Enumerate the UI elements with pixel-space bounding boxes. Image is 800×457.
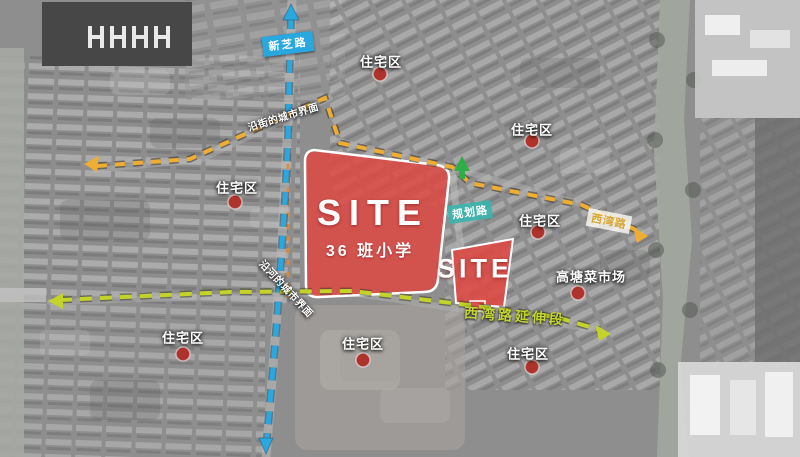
residential-label-5: 住宅区 xyxy=(342,334,384,353)
secondary-site-title: SITE xyxy=(437,254,513,285)
main-site-title: SITE xyxy=(317,192,429,234)
poi-dot-residential xyxy=(356,353,370,367)
residential-label-2: 住宅区 xyxy=(511,120,553,139)
poi-dot-residential xyxy=(176,347,190,361)
residential-label-1: 住宅区 xyxy=(360,52,402,71)
site-analysis-map: 新芝路 住宅区 住宅区 住宅区 住宅区 住宅区 住宅区 住宅区 高塘菜市场 规划… xyxy=(0,0,800,457)
residential-label-3: 住宅区 xyxy=(216,178,258,197)
xinzhi-road-line xyxy=(259,4,299,454)
market-label: 高塘菜市场 xyxy=(556,267,626,286)
poi-dot-market xyxy=(571,286,585,300)
residential-label-6: 住宅区 xyxy=(507,344,549,363)
main-site-subtitle: 36 班小学 xyxy=(326,237,414,261)
residential-label-4: 住宅区 xyxy=(519,211,561,230)
residential-label-7: 住宅区 xyxy=(162,328,204,347)
poi-dot-residential xyxy=(228,195,242,209)
entrance-arrow-icon xyxy=(454,156,470,179)
